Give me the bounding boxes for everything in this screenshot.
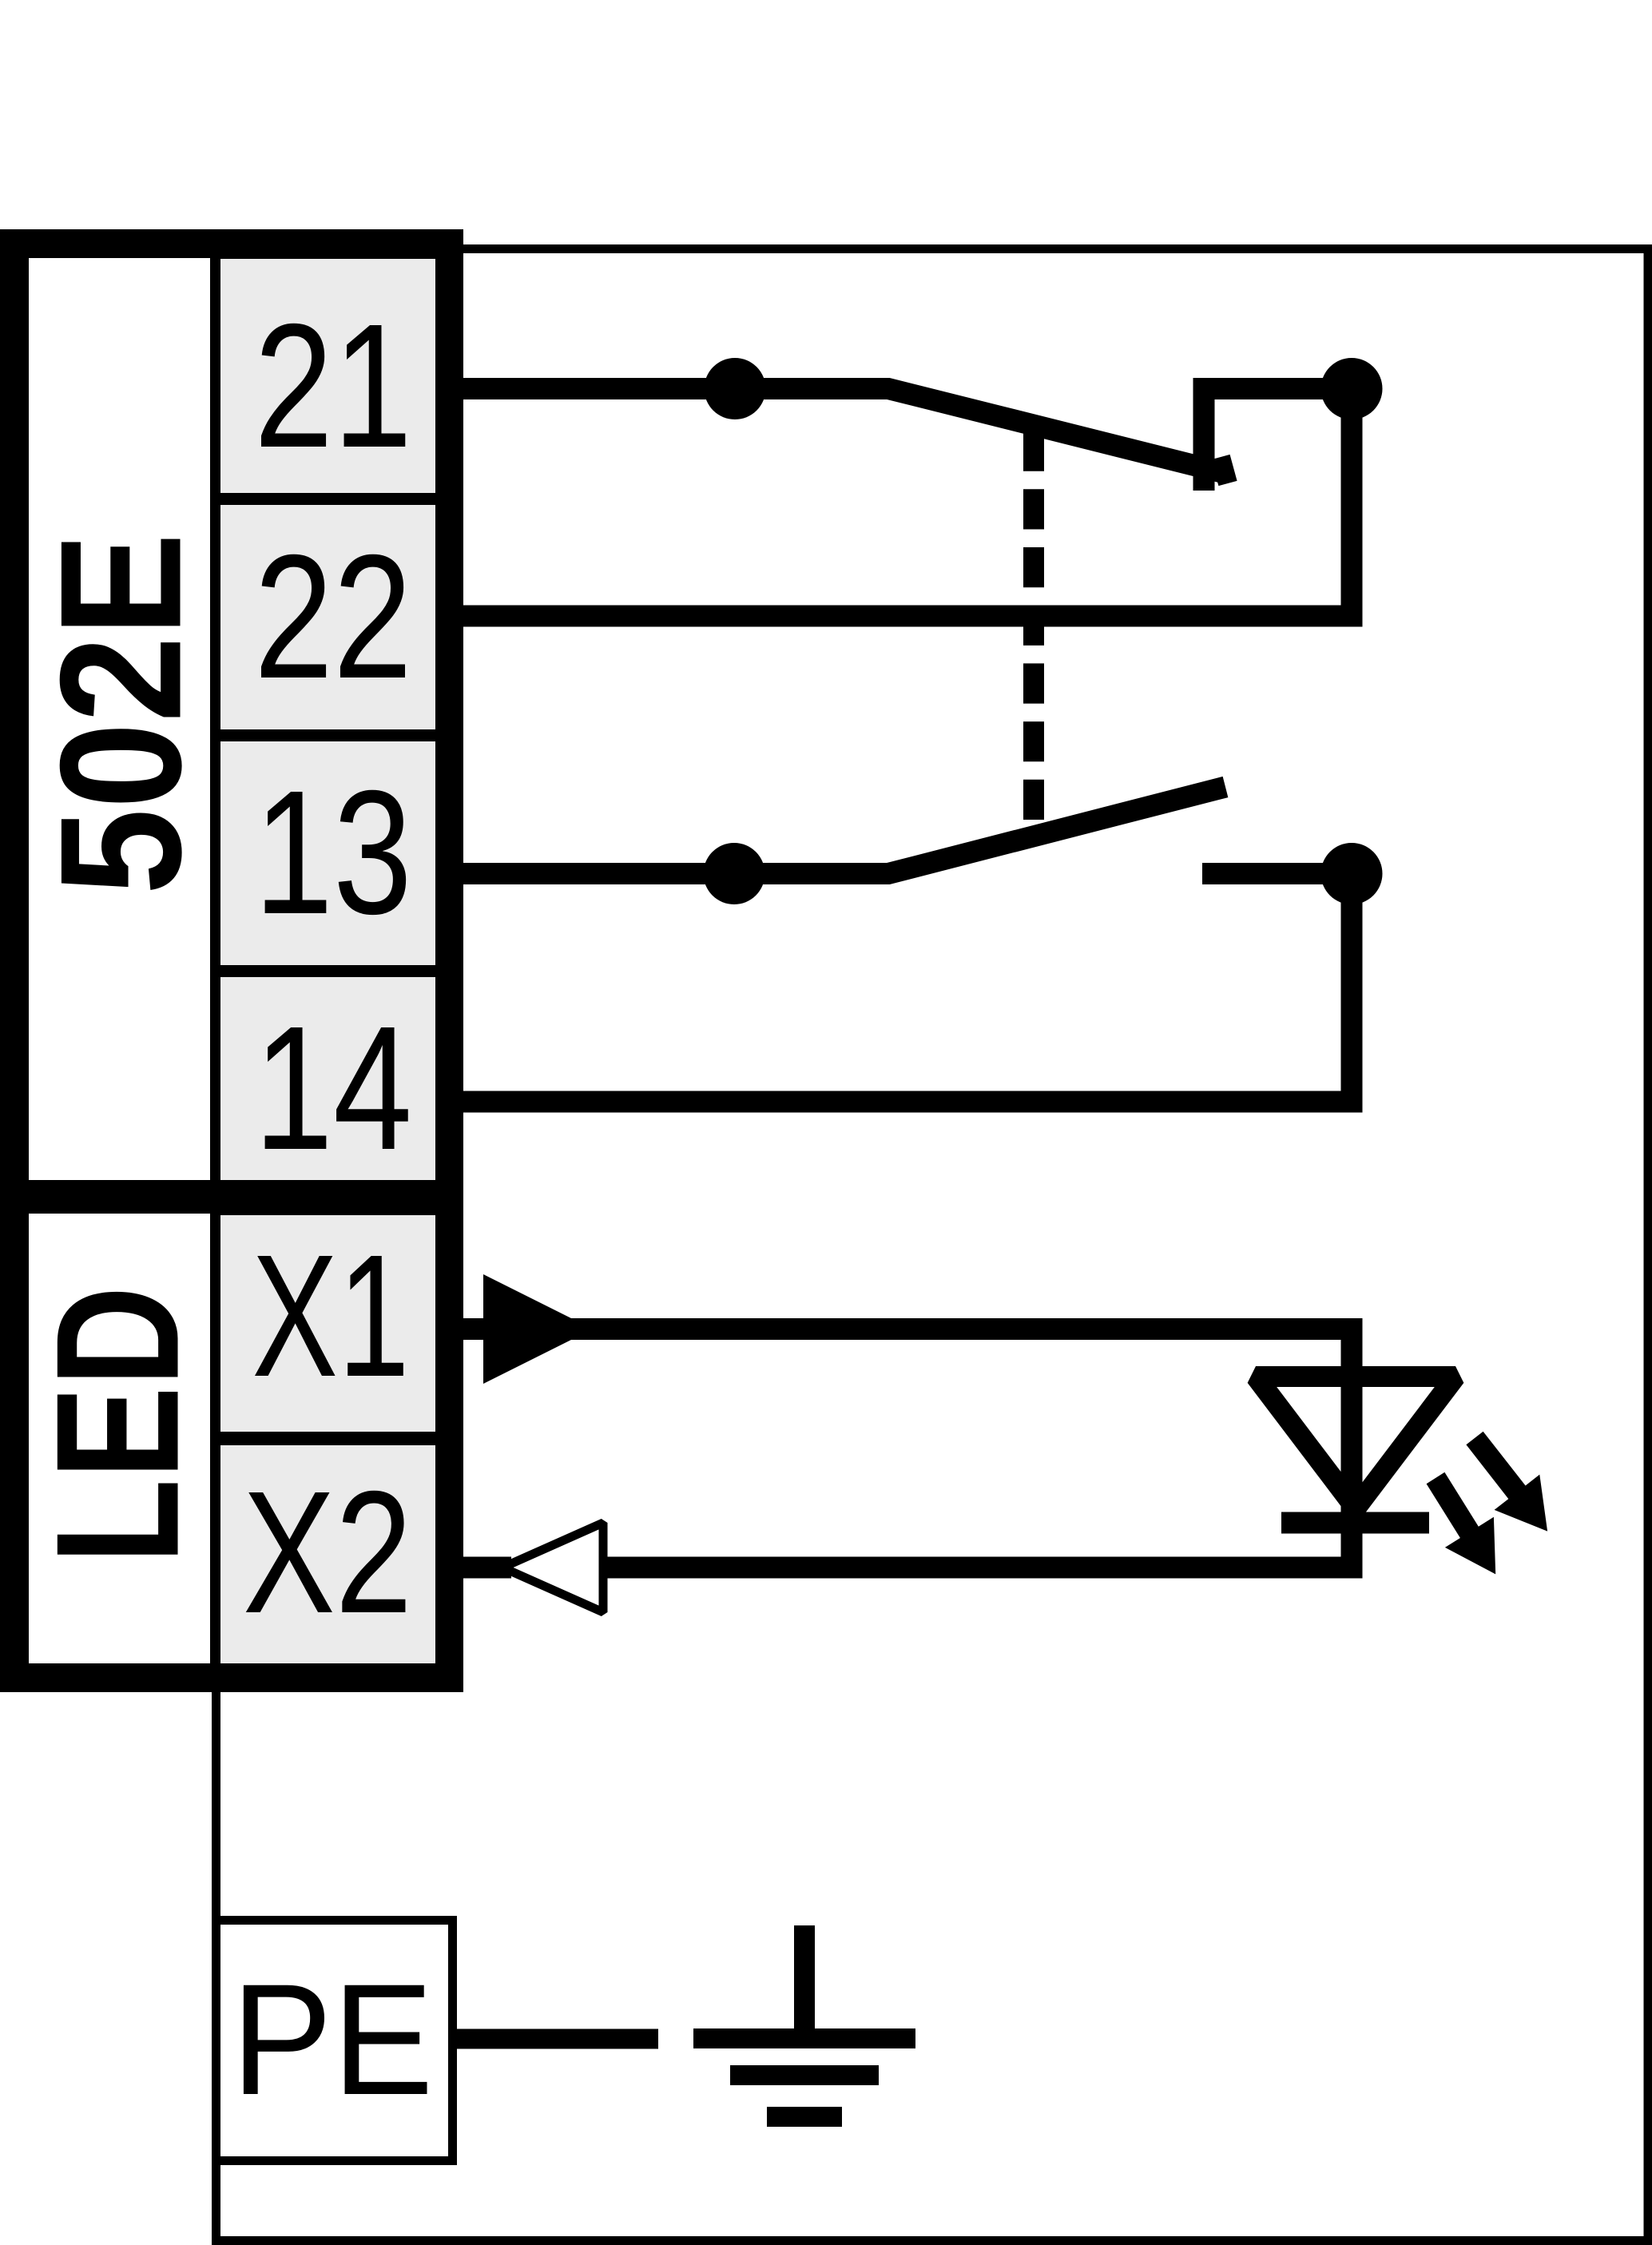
svg-text:21: 21 bbox=[254, 287, 412, 485]
svg-text:13: 13 bbox=[254, 753, 412, 952]
svg-text:X2: X2 bbox=[243, 1455, 412, 1649]
svg-text:22: 22 bbox=[254, 518, 412, 716]
svg-text:LED: LED bbox=[19, 1286, 215, 1564]
svg-text:PE: PE bbox=[231, 1951, 433, 2128]
svg-text:X1: X1 bbox=[252, 1218, 409, 1413]
svg-text:14: 14 bbox=[254, 989, 412, 1187]
svg-text:502E: 502E bbox=[25, 533, 217, 895]
